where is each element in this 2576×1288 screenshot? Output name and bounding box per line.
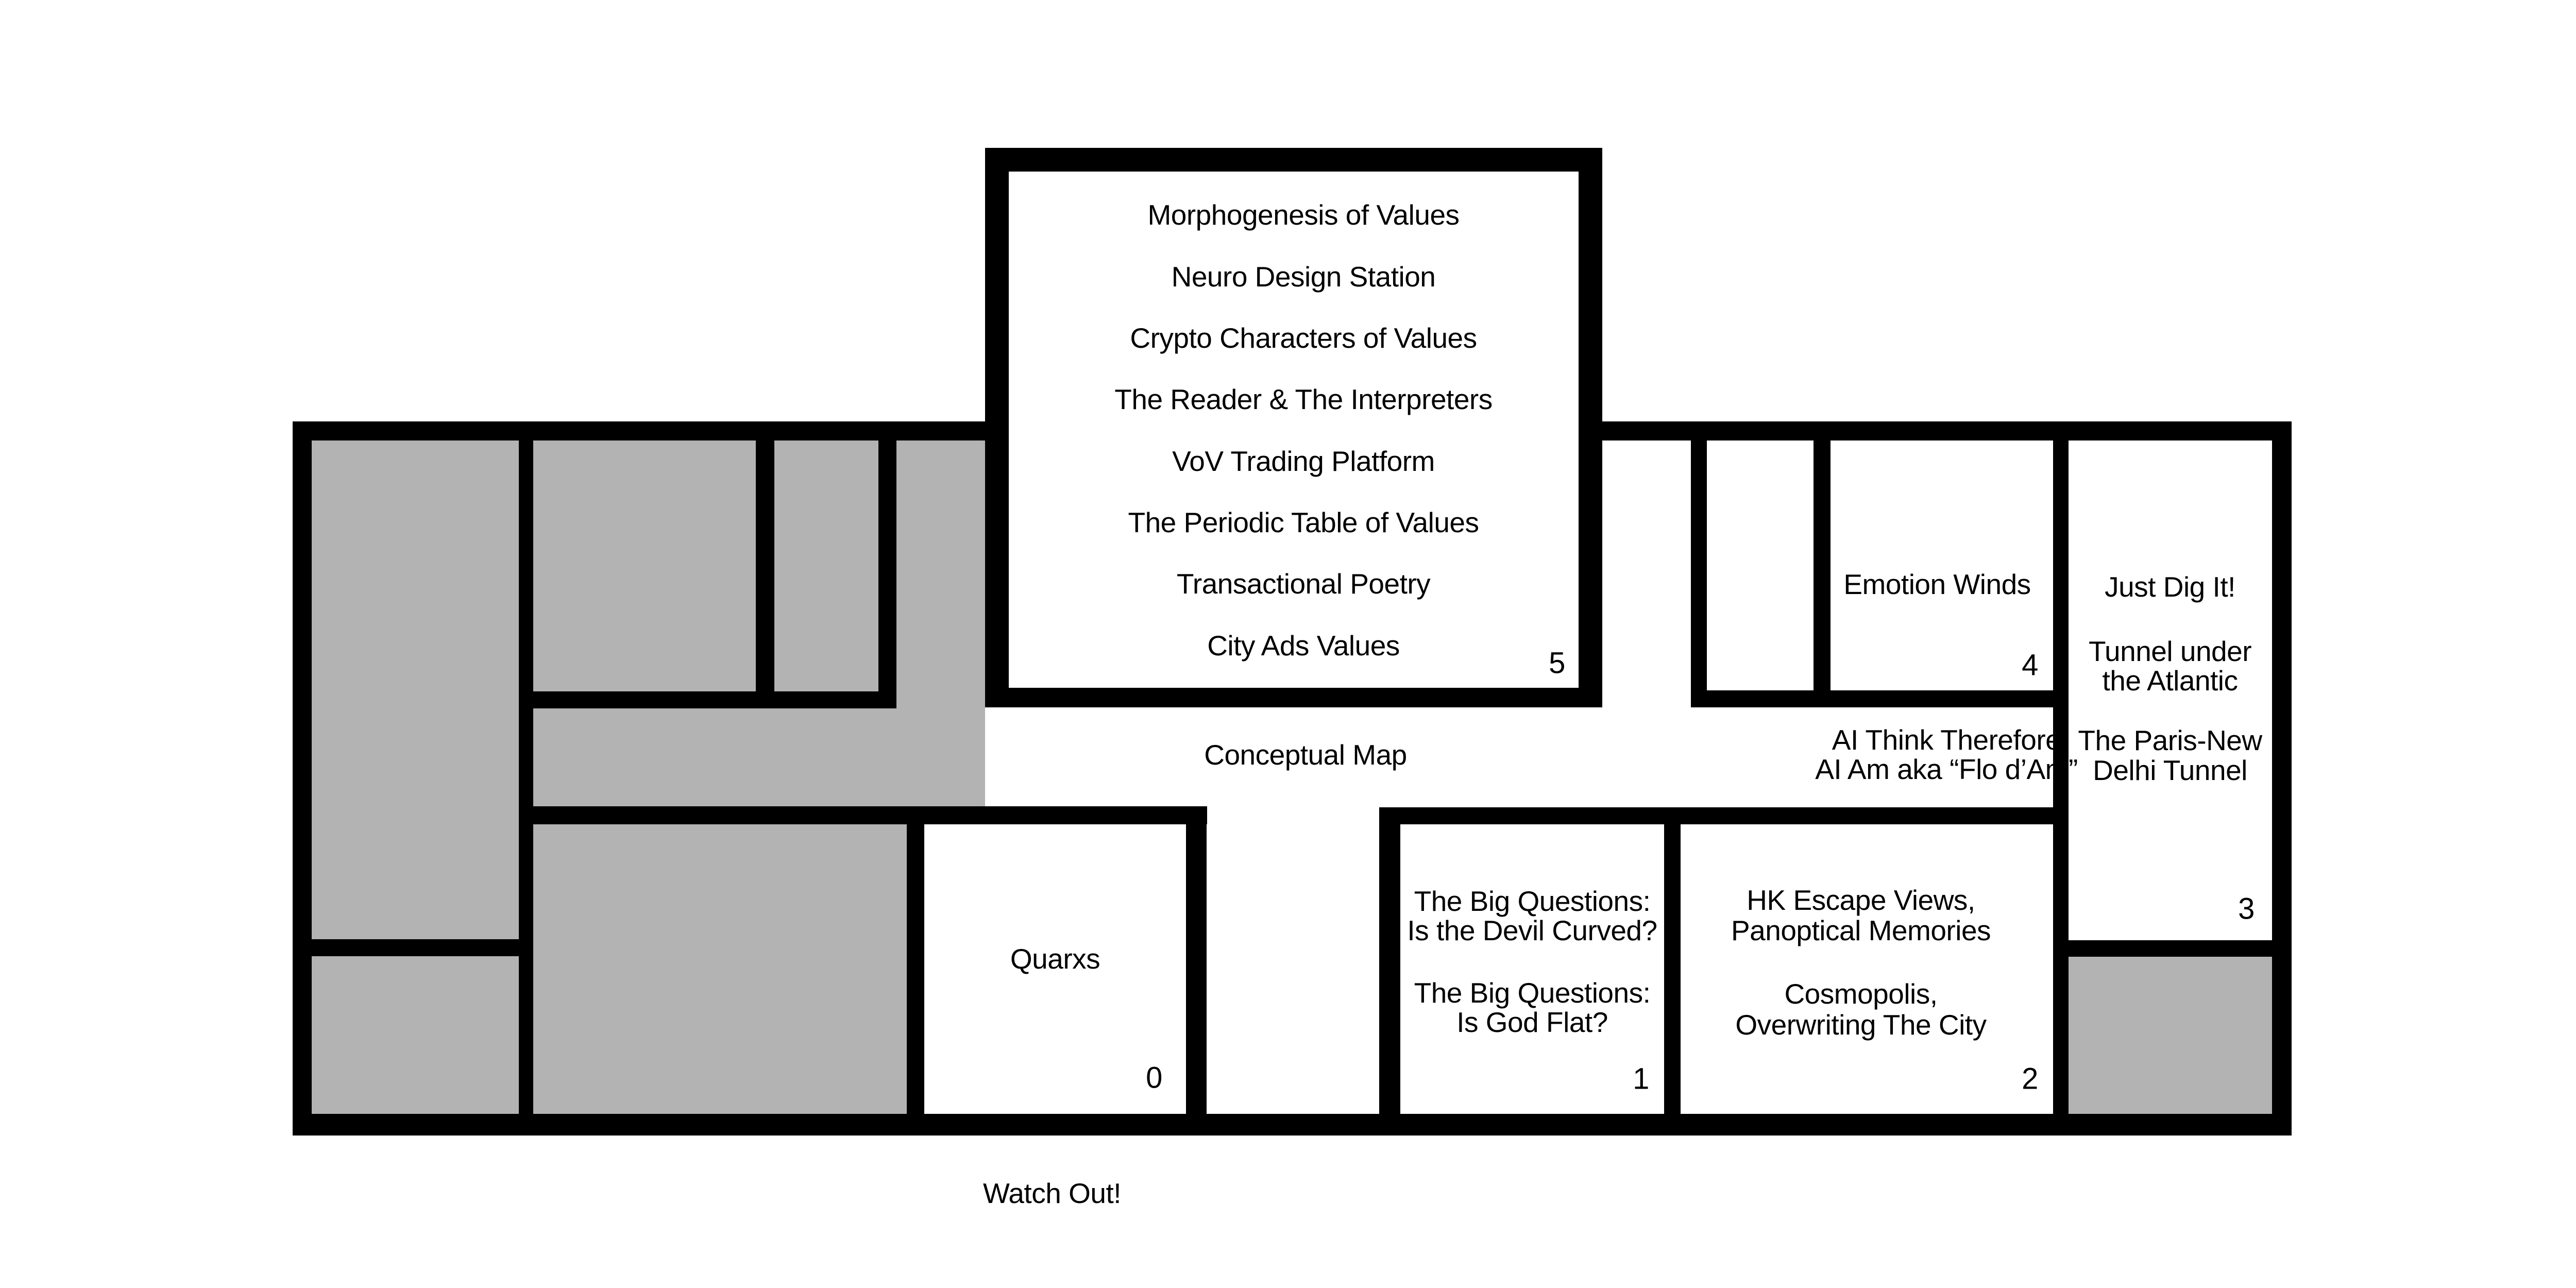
room5-title-transactional-poetry: Transactional Poetry (1177, 569, 1430, 599)
room0-label: Quarxs (1010, 944, 1100, 974)
gray-room-narrow-1 (774, 440, 878, 691)
room0-number: 0 (1146, 1063, 1162, 1094)
room2-label-line1: HK Escape Views, (1747, 886, 1975, 916)
room5-title-city-ads: City Ads Values (1207, 631, 1400, 661)
wall-room1-room2 (1664, 824, 1681, 1114)
gray-room-bottom-middle (533, 824, 907, 1114)
room4-number: 4 (2022, 650, 2038, 682)
wall-under-big-left-room (312, 939, 533, 956)
room5-title-neuro-design: Neuro Design Station (1172, 262, 1436, 292)
corridor-label-conceptual-map: Conceptual Map (1204, 740, 1407, 770)
corridor-label-ai-think-line2: AI Am aka “Flo d’Am” (1815, 755, 2078, 785)
room3-label-delhi-tunnel: Delhi Tunnel (2093, 756, 2247, 786)
wall-room0-block-top (519, 806, 1207, 824)
wall-rooms12-left (1379, 807, 1400, 1114)
room5-title-crypto-characters: Crypto Characters of Values (1130, 324, 1477, 353)
wall-rooms12-top (1379, 807, 2069, 824)
wall-top-right-segment (1602, 421, 2292, 440)
gray-room-top-middle (533, 440, 756, 691)
wall-room3-bottom (2069, 940, 2272, 957)
wall-room5-bottom (985, 688, 1602, 707)
room5-title-reader-interpreters: The Reader & The Interpreters (1114, 385, 1492, 415)
gray-corridor-band (533, 708, 896, 806)
gray-room-big-left (312, 440, 519, 939)
room4-label: Emotion Winds (1843, 570, 2030, 600)
exhibition-floor-plan: Morphogenesis of Values Neuro Design Sta… (0, 0, 2576, 1288)
wall-room5-top (985, 148, 1602, 172)
room3-label-just-dig-it: Just Dig It! (2105, 572, 2235, 602)
wall-emotion-block-middle (1814, 440, 1831, 707)
wall-room5-right (1579, 148, 1602, 707)
room5-number: 5 (1549, 648, 1565, 680)
wall-bottom-outer (293, 1114, 2292, 1136)
wall-room0-left (907, 824, 924, 1114)
room5-title-periodic-table: The Periodic Table of Values (1128, 508, 1479, 538)
wall-left-outer (293, 421, 312, 1134)
gray-room-small-left (312, 956, 519, 1114)
room1-label-line4: Is God Flat? (1456, 1008, 1608, 1038)
wall-left-complex-vertical (519, 440, 533, 1114)
wall-right-outer (2272, 421, 2292, 1134)
room3-label-paris-new: The Paris-New (2078, 726, 2262, 756)
wall-room5-left (985, 148, 1009, 707)
room2-label-line3: Cosmopolis, (1784, 979, 1937, 1009)
room2-label-line2: Panoptical Memories (1731, 916, 1991, 946)
room1-label-line1: The Big Questions: (1414, 887, 1651, 917)
outside-warning-label: Watch Out! (983, 1179, 1121, 1209)
wall-emotion-block-bottom (1691, 690, 2069, 707)
wall-emotion-block-left (1691, 440, 1707, 707)
room3-label-the-atlantic: the Atlantic (2102, 666, 2238, 696)
gray-room-narrow-2 (896, 440, 985, 806)
room5-title-morphogenesis: Morphogenesis of Values (1147, 200, 1459, 230)
room5-title-vov-trading: VoV Trading Platform (1172, 447, 1435, 477)
wall-top-left-segment (293, 421, 985, 440)
room3-label-tunnel-under: Tunnel under (2089, 637, 2251, 667)
wall-middle-narrow1 (756, 440, 774, 708)
gray-room-bottom-right (2069, 957, 2272, 1114)
corridor-label-ai-think-line1: AI Think Therefore (1832, 725, 2061, 755)
room2-label-line4: Overwriting The City (1735, 1010, 1986, 1040)
room1-label-line3: The Big Questions: (1414, 978, 1651, 1008)
wall-room0-right (1186, 824, 1207, 1114)
room1-number: 1 (1633, 1064, 1649, 1095)
room1-label-line2: Is the Devil Curved? (1407, 916, 1657, 946)
wall-narrow1-narrow2 (878, 440, 896, 708)
room3-number: 3 (2238, 894, 2255, 925)
room2-number: 2 (2022, 1064, 2038, 1095)
wall-top-rooms-bottom (533, 691, 896, 708)
